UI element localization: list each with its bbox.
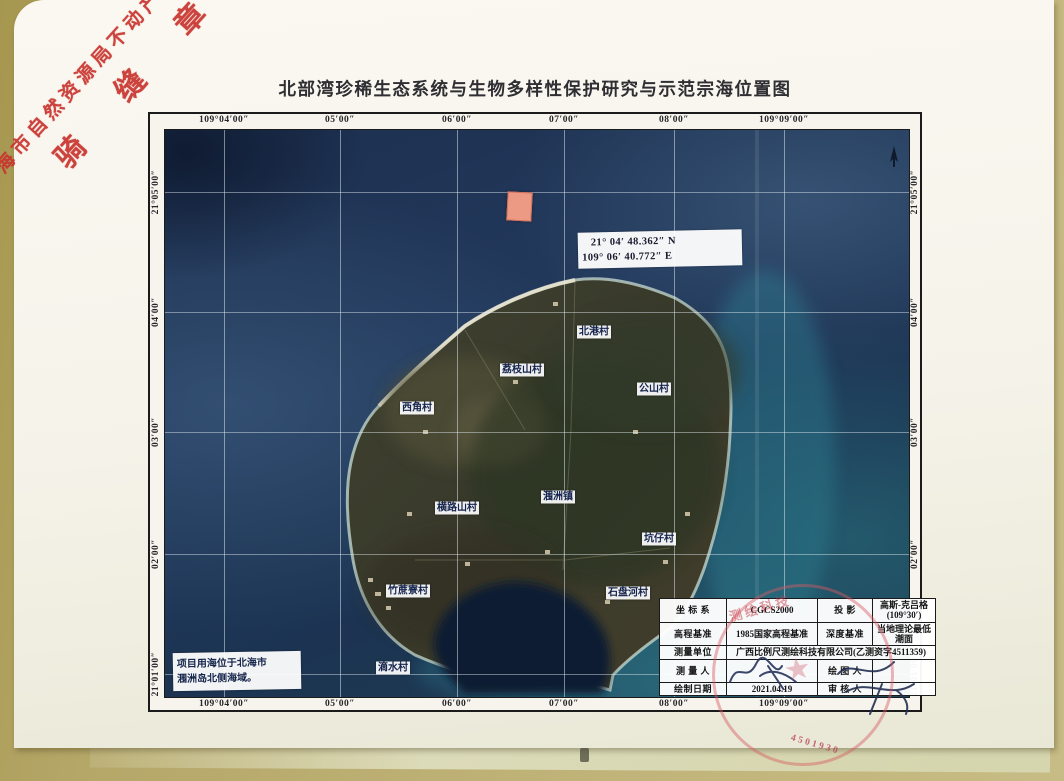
gridline-lat — [165, 554, 909, 555]
lon-tick-top: 06′00″ — [442, 115, 472, 125]
lat-tick-right: 02′00″ — [910, 539, 920, 569]
project-note: 项目用海位于北海市 涠洲岛北侧海域。 — [173, 651, 302, 691]
seal-star-icon: ★ — [781, 650, 814, 689]
projection-meridian: (109°30′) — [874, 610, 934, 620]
lat-tick-right: 21°05′00″ — [910, 170, 920, 215]
lon-tick-bottom: 109°04′00″ — [199, 699, 249, 709]
page-title: 北部湾珍稀生态系统与生物多样性保护研究与示范宗海位置图 — [279, 76, 792, 101]
village-label: 滴水村 — [376, 662, 410, 675]
village-label: 横路山村 — [435, 502, 479, 515]
page-edge-mark — [580, 748, 589, 762]
village-label: 涠洲镇 — [541, 491, 575, 504]
lat-tick-left: 03′00″ — [151, 417, 161, 447]
gridline-lat — [165, 312, 909, 313]
lon-tick-top: 109°04′00″ — [199, 115, 249, 125]
marker-coordinates-label: 21° 04′ 48.362″ N 109° 06′ 40.772″ E — [578, 229, 743, 269]
lon-tick-top: 07′00″ — [549, 115, 579, 125]
sea-use-marker — [506, 191, 532, 221]
village-label: 石盘河村 — [606, 587, 650, 600]
village-label: 荔枝山村 — [500, 364, 544, 377]
lat-tick-left: 04′00″ — [151, 297, 161, 327]
coord-system-key: 坐 标 系 — [660, 599, 727, 623]
lat-tick-left: 21°01′00″ — [151, 652, 161, 697]
lon-tick-top: 109°09′00″ — [759, 115, 809, 125]
lat-tick-right: 03′00″ — [910, 417, 920, 447]
scanned-map-page: 北部湾珍稀生态系统与生物多样性保护研究与示范宗海位置图 北海市自然资源局不动产登… — [0, 0, 1064, 781]
gridline-lon — [224, 130, 225, 697]
marker-lon: 109° 06′ 40.772″ E — [582, 248, 738, 266]
village-label: 公山村 — [637, 383, 671, 396]
projection-name: 高斯-克吕格 — [874, 600, 934, 610]
gridline-lat — [165, 432, 909, 433]
project-note-line2: 涠洲岛北侧海域。 — [177, 670, 297, 687]
lon-tick-bottom: 06′00″ — [442, 699, 472, 709]
lon-tick-bottom: 08′00″ — [659, 699, 689, 709]
lon-tick-top: 05′00″ — [325, 115, 355, 125]
lon-tick-top: 08′00″ — [659, 115, 689, 125]
height-datum-key: 高程基准 — [660, 622, 727, 646]
village-label: 西角村 — [400, 402, 434, 415]
projection-value: 高斯-克吕格 (109°30′) — [873, 599, 936, 623]
village-label: 竹蔗寮村 — [386, 585, 430, 598]
gridline-lat — [165, 192, 909, 193]
gridline-lon — [564, 130, 565, 697]
village-label: 北港村 — [577, 326, 611, 339]
gridline-lon — [340, 130, 341, 697]
north-arrow-icon — [887, 146, 901, 168]
lon-tick-bottom: 07′00″ — [549, 699, 579, 709]
village-label: 坑仔村 — [642, 533, 676, 546]
lon-tick-bottom: 05′00″ — [325, 699, 355, 709]
lat-tick-left: 02′00″ — [151, 539, 161, 569]
gridline-lon — [457, 130, 458, 697]
lat-tick-left: 21°05′00″ — [151, 170, 161, 215]
lat-tick-right: 04′00″ — [910, 297, 920, 327]
